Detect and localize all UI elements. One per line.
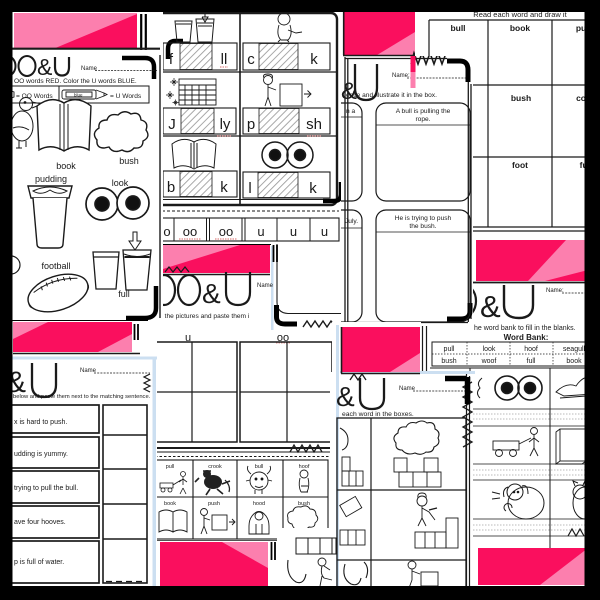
svg-text:udding is yummy.: udding is yummy. [14, 451, 68, 458]
svg-text:p is full of water.: p is full of water. [14, 559, 64, 566]
svg-text:k: k [309, 180, 317, 197]
svg-text:l: l [248, 180, 251, 197]
svg-text:&: & [480, 289, 501, 324]
svg-text:Name: Name [81, 66, 98, 72]
svg-text:p: p [247, 116, 255, 133]
svg-text:foot: foot [512, 160, 528, 170]
svg-text:sh: sh [306, 116, 322, 133]
svg-text:u: u [321, 224, 328, 239]
svg-text:blue: blue [74, 93, 83, 98]
svg-text:OO words RED. Color the U wor: OO words RED. Color the U words BLUE. [14, 78, 137, 85]
svg-text:he word bank to fill in the bl: he word bank to fill in the blanks. [474, 325, 576, 332]
svg-text:below and paste them next to t: below and paste them next to the matchin… [13, 394, 151, 400]
svg-text:book: book [56, 161, 76, 171]
svg-text:ave four hooves.: ave four hooves. [14, 519, 66, 526]
svg-text:c: c [247, 51, 255, 68]
svg-text:book: book [510, 23, 531, 33]
svg-text:pudding: pudding [35, 174, 67, 184]
svg-text:&: & [336, 381, 355, 412]
svg-text:&: & [37, 54, 52, 80]
svg-text:bush: bush [511, 93, 531, 103]
svg-text:k: k [310, 51, 318, 68]
svg-text:rope.: rope. [415, 116, 430, 123]
svg-text:look: look [483, 346, 496, 353]
svg-text:hood: hood [253, 501, 265, 507]
svg-text:oo: oo [219, 224, 233, 239]
svg-text:ence and illustrate it in the: ence and illustrate it in the box. [346, 92, 437, 99]
svg-text:&: & [202, 278, 221, 309]
svg-text:ly: ly [220, 116, 231, 133]
svg-text:n a: n a [346, 108, 355, 115]
svg-text:Name: Name [257, 283, 274, 289]
svg-text:trying to pull the bull.: trying to pull the bull. [14, 485, 78, 492]
svg-text:Word Bank:: Word Bank: [504, 333, 549, 342]
svg-text:book: book [566, 358, 582, 365]
svg-text:J: J [168, 116, 176, 133]
svg-text:k: k [220, 179, 228, 196]
svg-text:oo: oo [183, 224, 197, 239]
svg-text:full: full [118, 289, 130, 299]
svg-text:= U Words: = U Words [110, 93, 142, 100]
svg-text:Name:: Name: [546, 288, 564, 294]
svg-text:the bush.: the bush. [409, 223, 436, 230]
svg-text:bush: bush [441, 358, 456, 365]
svg-text:bush: bush [119, 156, 139, 166]
svg-text:crook: crook [208, 464, 222, 470]
svg-text:A bull is pulling the: A bull is pulling the [396, 108, 451, 115]
svg-text:push: push [208, 501, 220, 507]
svg-text:u: u [257, 224, 264, 239]
svg-text:bull: bull [255, 464, 264, 470]
svg-text:look: look [112, 178, 129, 188]
svg-text:hoof: hoof [524, 346, 538, 353]
svg-text:bull: bull [450, 23, 465, 33]
svg-text:ll: ll [221, 51, 228, 68]
svg-text:o: o [163, 224, 170, 239]
svg-text:July.: July. [345, 218, 358, 225]
svg-text:hoof: hoof [299, 464, 310, 470]
svg-text:football: football [41, 261, 70, 271]
svg-text:full: full [527, 358, 536, 365]
svg-text:x is hard to push.: x is hard to push. [14, 419, 67, 426]
svg-text:pull: pull [166, 464, 175, 470]
svg-text:b: b [167, 179, 175, 196]
svg-text:woof: woof [481, 358, 497, 365]
svg-text:seagull: seagull [563, 346, 586, 353]
svg-text:pull: pull [444, 346, 455, 353]
svg-text:He is trying to push: He is trying to push [395, 215, 452, 222]
svg-text:t out the pictures and paste t: t out the pictures and paste them i [150, 313, 250, 320]
svg-text:u: u [290, 224, 297, 239]
svg-text:book: book [164, 501, 176, 507]
svg-text:each word in the boxes.: each word in the boxes. [342, 411, 414, 418]
